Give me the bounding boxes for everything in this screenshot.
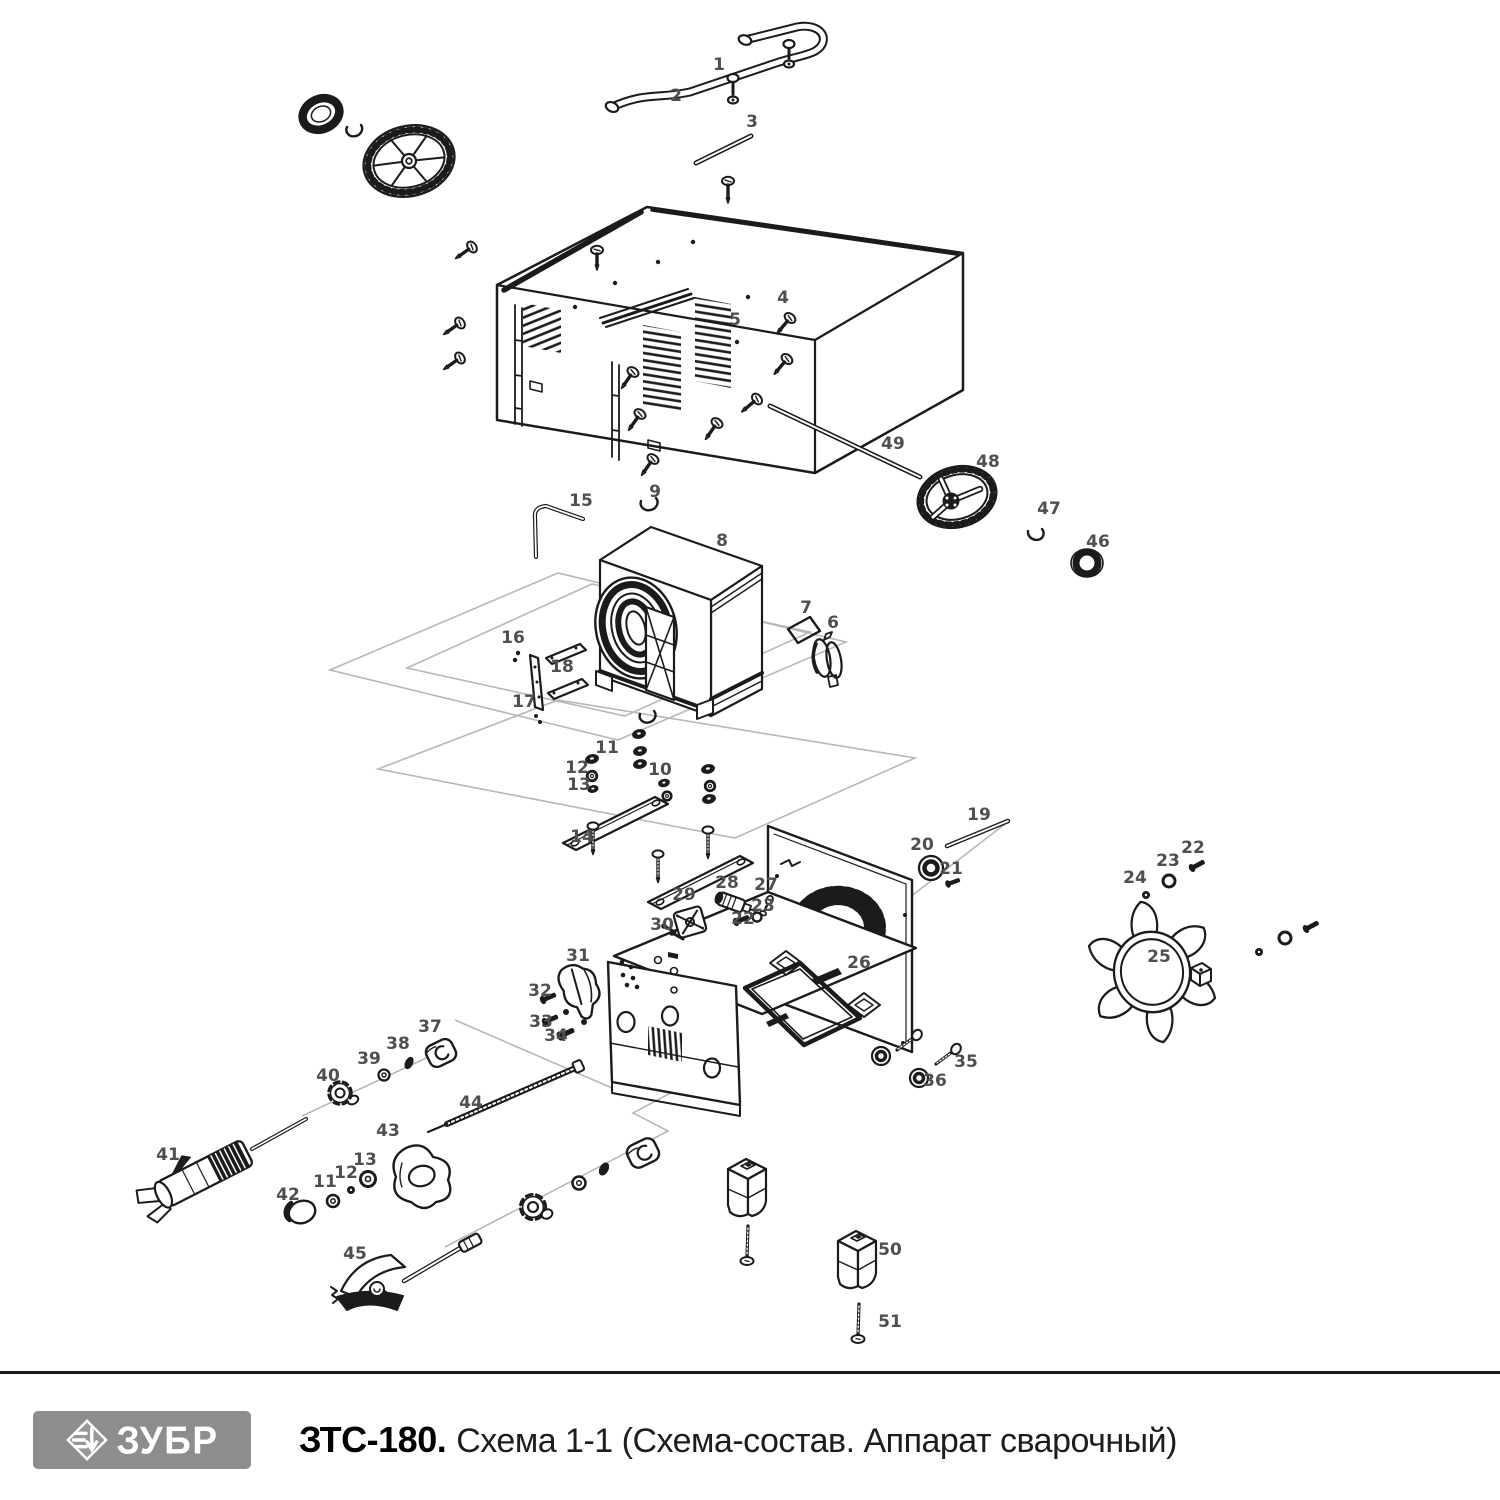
- diagram-subtitle: Схема 1-1 (Схема-состав. Аппарат сварочн…: [456, 1422, 1177, 1460]
- part-41-electrode-holder: [128, 1119, 306, 1226]
- part-label-34: 34: [544, 1026, 568, 1046]
- part-label-4: 4: [777, 288, 789, 308]
- part-label-25: 25: [1147, 947, 1171, 967]
- zubr-diamond-icon: [65, 1418, 109, 1462]
- part-label-23: 23: [751, 896, 775, 916]
- part-label-10: 10: [648, 760, 672, 780]
- part-label-18: 18: [550, 657, 574, 677]
- part-label-42: 42: [276, 1185, 300, 1205]
- exploded-diagram: 1234567891011121314151617181920212223242…: [0, 0, 1500, 1500]
- part-label-19: 19: [967, 805, 991, 825]
- part-46-cap: [1071, 549, 1103, 577]
- part-39-nut: [379, 1070, 390, 1081]
- part-label-22: 22: [1181, 838, 1205, 858]
- part-label-45: 45: [343, 1244, 367, 1264]
- part-label-43: 43: [376, 1121, 400, 1141]
- part-label-38: 38: [386, 1034, 410, 1054]
- part-44-cable: [428, 1060, 585, 1132]
- part-label-39: 39: [357, 1049, 381, 1069]
- part-label-44: 44: [459, 1093, 483, 1113]
- part-label-27: 27: [754, 875, 778, 895]
- part-label-13: 13: [353, 1150, 377, 1170]
- part-label-6: 6: [827, 613, 839, 633]
- part-label-37: 37: [418, 1017, 442, 1037]
- part-label-26: 26: [847, 953, 871, 973]
- part-label-46: 46: [1086, 532, 1110, 552]
- part-label-14: 14: [570, 827, 594, 847]
- part-label-30: 30: [650, 915, 674, 935]
- part-label-35: 35: [954, 1052, 978, 1072]
- footer-divider: [0, 1371, 1500, 1374]
- part-8-transformer: [585, 527, 762, 719]
- part-label-29: 29: [672, 885, 696, 905]
- part-label-51: 51: [878, 1312, 902, 1332]
- part-label-8: 8: [716, 531, 728, 551]
- part-label-32: 32: [528, 981, 552, 1001]
- panel-socket-chain: [520, 1136, 661, 1221]
- brand-name: ЗУБР: [116, 1421, 218, 1460]
- part-15-bracket: [535, 506, 583, 557]
- part-label-20: 20: [910, 835, 934, 855]
- part-label-11: 11: [595, 738, 619, 758]
- circlip-left-icon: [346, 125, 362, 136]
- part-label-48: 48: [976, 452, 1000, 472]
- part-label-50: 50: [878, 1240, 902, 1260]
- part-label-1: 1: [713, 55, 725, 75]
- part-25-fan: [1076, 891, 1228, 1053]
- part-31-knob: [556, 960, 605, 1023]
- part-43-knob: [394, 1145, 451, 1208]
- part-label-7: 7: [800, 598, 812, 618]
- part-47-circlip: [1028, 529, 1044, 540]
- part-label-49: 49: [881, 434, 905, 454]
- part-label-41: 41: [156, 1145, 180, 1165]
- brand-logo: ЗУБР: [33, 1411, 251, 1469]
- diagram-title: ЗТС-180.Схема 1-1 (Схема-состав. Аппарат…: [299, 1419, 1177, 1461]
- model-number: ЗТС-180.: [299, 1419, 446, 1460]
- part-label-36: 36: [923, 1071, 947, 1091]
- part-label-21: 21: [939, 859, 963, 879]
- part-label-9: 9: [649, 482, 661, 502]
- part-label-47: 47: [1037, 499, 1061, 519]
- clip-under-transformer-icon: [640, 711, 656, 723]
- part-label-13: 13: [567, 775, 591, 795]
- part-label-16: 16: [501, 628, 525, 648]
- part-label-40: 40: [316, 1066, 340, 1086]
- part-label-15: 15: [569, 491, 593, 511]
- part-label-24: 24: [1123, 868, 1147, 888]
- part-label-5: 5: [729, 310, 741, 330]
- screw-under-pin-icon: [722, 177, 734, 203]
- wheel-cap-left: [297, 92, 344, 135]
- footer: ЗУБР ЗТС-180.Схема 1-1 (Схема-состав. Ап…: [33, 1411, 1177, 1469]
- part-3-pin: [696, 136, 751, 163]
- part-50-brackets: [728, 1159, 876, 1288]
- part-16-screws: [513, 651, 520, 662]
- part-label-28: 28: [715, 873, 739, 893]
- part-label-17: 17: [512, 692, 536, 712]
- part-label-31: 31: [566, 946, 590, 966]
- part-label-3: 3: [746, 112, 758, 132]
- part-37-connector: [423, 1037, 458, 1070]
- part-label-23: 23: [1156, 851, 1180, 871]
- part-17-bracket: [530, 655, 543, 724]
- part-label-2: 2: [670, 86, 682, 106]
- wheel-left: [356, 116, 462, 206]
